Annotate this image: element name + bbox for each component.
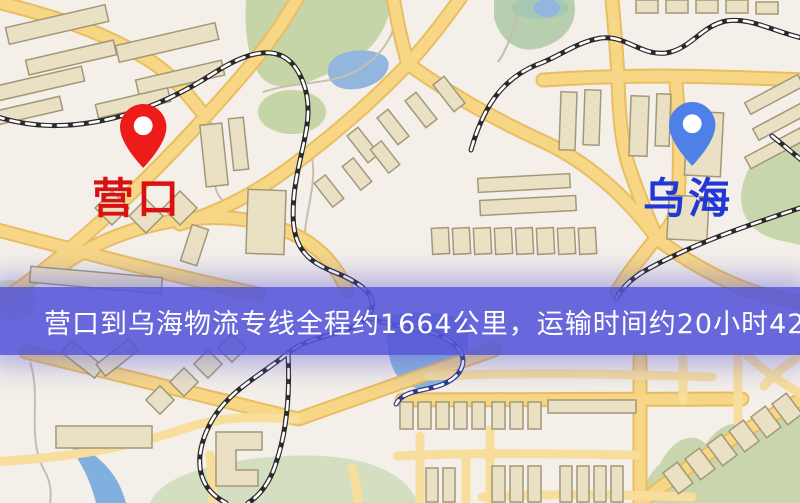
route-info-text: 营口到乌海物流专线全程约1664公里，运输时间约20小时42分钟. [44, 302, 800, 341]
destination-city-label: 乌海 [643, 178, 733, 220]
route-info-banner: 营口到乌海物流专线全程约1664公里，运输时间约20小时42分钟. [0, 287, 800, 355]
map-view: 营口 乌海 营口到乌海物流专线全程约1664公里，运输时间约20小时42分钟. [0, 0, 800, 503]
map-canvas [0, 0, 800, 503]
origin-city-label: 营口 [92, 178, 182, 220]
